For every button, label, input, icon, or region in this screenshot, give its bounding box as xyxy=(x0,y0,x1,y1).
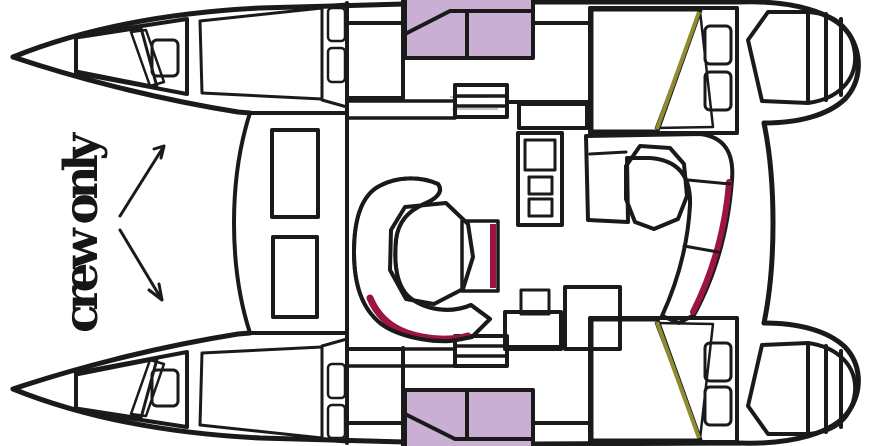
blanket xyxy=(592,320,701,440)
crew-only-annotation: crew only xyxy=(54,131,164,333)
bench-shading xyxy=(693,182,729,312)
pillow xyxy=(328,48,345,82)
stairs xyxy=(455,85,507,117)
stern-steps-top xyxy=(748,12,855,103)
cabin-berth-bottom xyxy=(405,390,533,446)
crew-only-label: crew only xyxy=(54,131,109,333)
counter-top xyxy=(519,104,587,128)
cabin-berth-top xyxy=(405,0,533,58)
stern-steps-bottom xyxy=(748,343,855,434)
forward-crossbeam-arc xyxy=(234,113,250,333)
burner xyxy=(529,177,552,194)
catamaran-floor-plan: crew only xyxy=(0,0,890,446)
foredeck-hatch xyxy=(273,237,317,317)
forward-berth-top xyxy=(200,4,347,107)
pillow xyxy=(328,405,345,438)
salon-seating xyxy=(354,178,498,341)
arrow-to-bottom-berth xyxy=(120,230,162,300)
stair-treads xyxy=(455,346,507,356)
aft-berth-bottom xyxy=(590,318,737,442)
blanket-shading xyxy=(657,322,699,438)
blanket xyxy=(200,347,322,438)
foredeck-hatch xyxy=(272,130,318,217)
blanket xyxy=(200,8,322,99)
pillow xyxy=(328,364,345,398)
nav-desk xyxy=(505,312,561,349)
foredeck-hatches xyxy=(272,130,318,317)
sofa-extension-shading xyxy=(490,224,496,288)
floor-plan-drawing: crew only xyxy=(0,0,890,446)
burner xyxy=(529,199,552,216)
sideboard xyxy=(347,101,455,118)
cockpit xyxy=(586,134,732,323)
step-lines xyxy=(808,12,841,103)
blanket-shading xyxy=(657,12,699,129)
galley-unit xyxy=(518,133,562,225)
step-lines xyxy=(808,343,841,434)
pillow xyxy=(328,8,345,41)
blanket-fold xyxy=(131,30,164,86)
aft-berth-top xyxy=(590,8,737,133)
berth-base xyxy=(322,339,347,442)
stairs-top xyxy=(455,85,507,117)
pillow xyxy=(705,26,731,64)
blanket xyxy=(592,10,701,131)
arrow-to-top-berth xyxy=(120,146,164,216)
bench-cushion-dividers xyxy=(590,152,730,252)
berth-base xyxy=(322,4,347,107)
aft-deck-edge xyxy=(764,123,773,323)
pillow xyxy=(705,387,731,425)
blanket-fold xyxy=(131,360,164,416)
sink xyxy=(525,140,555,170)
stair-treads xyxy=(455,96,507,106)
forward-berth-bottom xyxy=(200,339,347,442)
sofa-outline xyxy=(354,178,490,341)
